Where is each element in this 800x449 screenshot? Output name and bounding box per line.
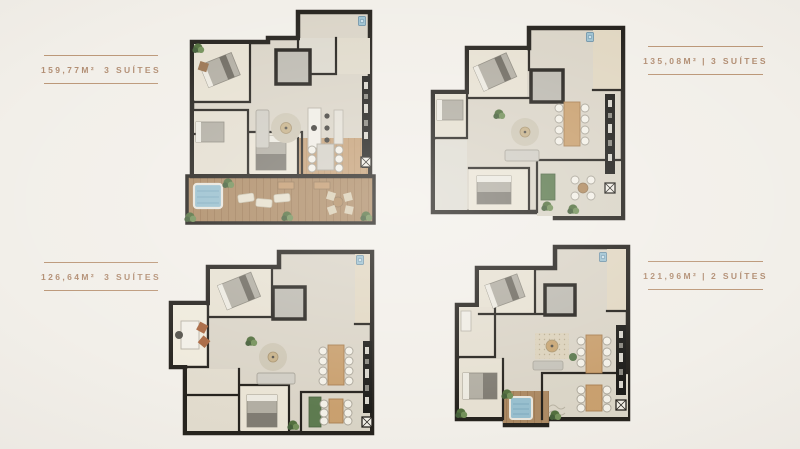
kitchen-appliance-column: [363, 341, 372, 413]
round-rug: [259, 343, 287, 371]
floorplan-4: [455, 247, 628, 425]
area-value: 135,08M²: [643, 56, 698, 66]
terrace-furniture: [309, 397, 352, 427]
round-rug: [271, 113, 301, 143]
kitchen-appliance-column: [605, 94, 615, 174]
washer-icon: [357, 256, 364, 265]
label-separator: |: [702, 56, 707, 66]
plan-1-label: 159,77M²3 SUÍTES: [44, 55, 158, 84]
label-rule-bottom: [648, 289, 763, 290]
bed: [477, 176, 511, 204]
dining-table: [328, 345, 344, 385]
suites-value: 3 SUÍTES: [104, 65, 161, 75]
shaft-x-icon: [605, 183, 615, 193]
suites-value: 3 SUÍTES: [711, 56, 768, 66]
terrace-furniture: [577, 385, 611, 412]
floorplan-2: [433, 28, 623, 218]
area-value: 121,96M²: [643, 271, 698, 281]
floorplan-3: [171, 252, 372, 433]
sofa: [505, 150, 539, 161]
planter-box: [278, 182, 294, 189]
kitchen-appliance-column: [616, 325, 626, 395]
dining-table: [317, 144, 334, 170]
washer-icon: [600, 253, 607, 262]
hot-tub: [510, 397, 532, 419]
elevator-core: [273, 287, 305, 319]
label-rule-bottom: [44, 290, 158, 291]
plan-2-label-text: 135,08M²|3 SUÍTES: [643, 47, 768, 74]
bed: [196, 122, 224, 142]
dining-table: [564, 102, 580, 146]
bed: [463, 373, 497, 399]
round-rug: [511, 118, 539, 146]
sofa: [257, 373, 295, 384]
bed: [437, 100, 463, 120]
plan-4-label-text: 121,96M²|2 SUÍTES: [643, 262, 768, 289]
dining-table: [586, 335, 602, 373]
kitchen-island: [308, 108, 343, 148]
area-value: 159,77M²: [41, 65, 96, 75]
plan-2-label: 135,08M²|3 SUÍTES: [648, 46, 763, 75]
elevator-core: [545, 285, 575, 315]
floorplan-1: [184, 12, 374, 223]
hot-tub: [194, 184, 222, 208]
elevator-core: [531, 70, 563, 102]
sofa: [256, 110, 269, 148]
shaft-x-icon: [361, 157, 371, 167]
label-rule-bottom: [44, 83, 158, 84]
plan-4-label: 121,96M²|2 SUÍTES: [648, 261, 763, 290]
suites-value: 3 SUÍTES: [104, 272, 161, 282]
label-rule-bottom: [648, 74, 763, 75]
washer-icon: [587, 33, 594, 42]
washer-icon: [359, 17, 366, 26]
dresser: [461, 311, 471, 331]
bed: [247, 395, 277, 427]
elevator-core: [276, 50, 310, 84]
plan-3-label-text: 126,64M²3 SUÍTES: [41, 263, 161, 290]
planter-box: [314, 182, 330, 189]
plan-3-label: 126,64M²3 SUÍTES: [44, 262, 158, 291]
shaft-x-icon: [362, 417, 372, 427]
kitchen-appliance-column: [362, 76, 370, 168]
label-separator: |: [702, 271, 707, 281]
suites-value: 2 SUÍTES: [711, 271, 768, 281]
page: 159,77M²3 SUÍTES 135,08M²|3 SUÍTES 126,6…: [0, 0, 800, 449]
shaft-x-icon: [616, 400, 626, 410]
plan-1-label-text: 159,77M²3 SUÍTES: [41, 56, 161, 83]
area-value: 126,64M²: [41, 272, 96, 282]
